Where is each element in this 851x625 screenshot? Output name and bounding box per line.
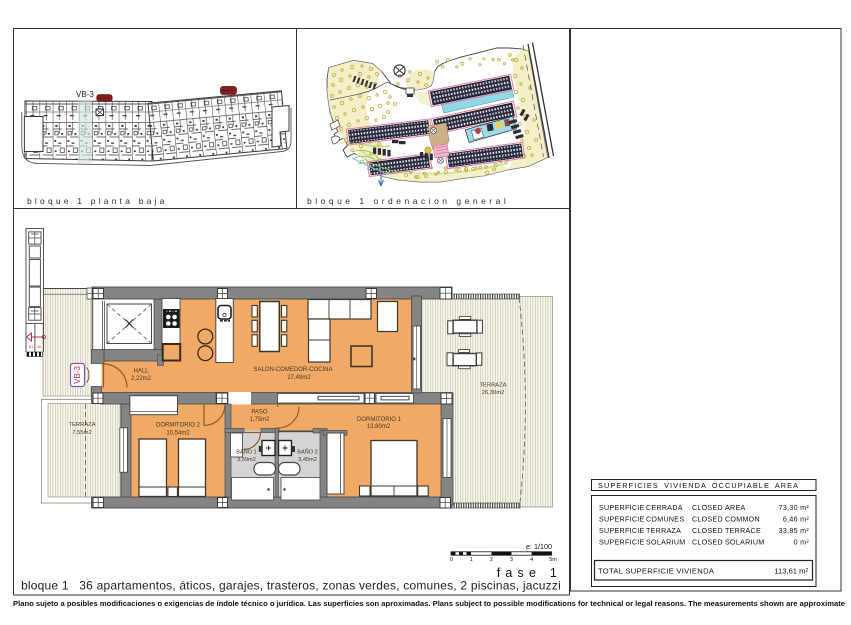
svg-text:VB-3: VB-3 bbox=[76, 90, 94, 99]
svg-text:SOLARIUM: SOLARIUM bbox=[725, 539, 764, 547]
svg-text:DORMITORIO 1: DORMITORIO 1 bbox=[357, 417, 402, 423]
svg-text:3,45m2: 3,45m2 bbox=[298, 457, 317, 463]
svg-text:13,80m2: 13,80m2 bbox=[367, 424, 391, 430]
svg-text:TERRAZA: TERRAZA bbox=[479, 383, 506, 389]
svg-text:3: 3 bbox=[510, 557, 513, 563]
svg-text:e: 1/100: e: 1/100 bbox=[526, 542, 552, 551]
svg-text:0 m²: 0 m² bbox=[794, 539, 810, 547]
svg-text:10,54m2: 10,54m2 bbox=[166, 431, 190, 437]
svg-text:2: 2 bbox=[490, 557, 493, 563]
svg-text:7,55m2: 7,55m2 bbox=[72, 430, 91, 436]
svg-text:113,61 m²: 113,61 m² bbox=[774, 567, 808, 576]
svg-text:TERRACE: TERRACE bbox=[725, 527, 761, 535]
svg-text:SUPERFICIE: SUPERFICIE bbox=[599, 539, 645, 547]
svg-text:bloque 1 ordenacion general: bloque 1 ordenacion general bbox=[307, 196, 509, 206]
svg-text:27,49m2: 27,49m2 bbox=[287, 375, 311, 381]
svg-text:2,22m2: 2,22m2 bbox=[131, 376, 152, 382]
svg-text:SUPERFICIES VIVIENDA OCCUPIABL: SUPERFICIES VIVIENDA OCCUPIABLE AREA bbox=[598, 481, 799, 490]
svg-text:Plano sujeto a posibles mo: Plano sujeto a posibles modificaciones o… bbox=[13, 601, 845, 608]
svg-text:33,85 m²: 33,85 m² bbox=[779, 527, 810, 535]
svg-text:0: 0 bbox=[450, 557, 453, 563]
svg-text:SUPERFICIE: SUPERFICIE bbox=[599, 527, 645, 535]
svg-text:CLOSED: CLOSED bbox=[692, 527, 723, 535]
svg-text:CLOSED: CLOSED bbox=[692, 516, 723, 524]
svg-text:CERRADA: CERRADA bbox=[646, 504, 683, 512]
svg-text:TERRAZA: TERRAZA bbox=[646, 527, 681, 535]
svg-text:bloque 1 36 apartamentos, át: bloque 1 36 apartamentos, áticos, garaje… bbox=[21, 579, 561, 593]
svg-text:SOLARIUM: SOLARIUM bbox=[646, 539, 685, 547]
svg-text:HALL: HALL bbox=[133, 369, 149, 375]
svg-text:TERRAZA: TERRAZA bbox=[68, 422, 95, 428]
svg-text:COMMON: COMMON bbox=[725, 516, 760, 524]
svg-text:6,46 m²: 6,46 m² bbox=[783, 516, 809, 524]
svg-text:TOTAL SUPERFICIE VIVIENDA: TOTAL SUPERFICIE VIVIENDA bbox=[598, 567, 715, 576]
svg-text:1,75m2: 1,75m2 bbox=[249, 417, 270, 423]
svg-text:B1: B1 bbox=[29, 345, 33, 349]
svg-text:3,59m2: 3,59m2 bbox=[237, 457, 256, 463]
svg-text:DORMITORIO 2: DORMITORIO 2 bbox=[156, 423, 201, 429]
svg-text:SALON-COMEDOR-COCINA: SALON-COMEDOR-COCINA bbox=[253, 367, 332, 373]
svg-text:BAÑO 2: BAÑO 2 bbox=[297, 449, 318, 456]
svg-text:SUPERFICIE: SUPERFICIE bbox=[599, 504, 645, 512]
svg-text:73,30 m²: 73,30 m² bbox=[779, 504, 810, 512]
svg-text:BAÑO 1: BAÑO 1 bbox=[236, 449, 257, 456]
svg-text:5m: 5m bbox=[549, 557, 557, 563]
svg-text:COMUNES: COMUNES bbox=[646, 516, 684, 524]
svg-text:CLOSED: CLOSED bbox=[692, 539, 723, 547]
svg-text:VB-3: VB-3 bbox=[73, 366, 82, 384]
svg-text:SUPERFICIE: SUPERFICIE bbox=[599, 516, 645, 524]
svg-text:bloque 1 planta baja: bloque 1 planta baja bbox=[27, 196, 168, 206]
svg-text:B1: B1 bbox=[38, 345, 42, 349]
svg-text:26,30m2: 26,30m2 bbox=[482, 390, 505, 396]
svg-text:CLOSED: CLOSED bbox=[692, 504, 723, 512]
svg-text:AREA: AREA bbox=[725, 504, 746, 512]
svg-text:1: 1 bbox=[470, 557, 473, 563]
svg-text:4: 4 bbox=[530, 557, 533, 563]
svg-text:PASO: PASO bbox=[251, 410, 268, 416]
